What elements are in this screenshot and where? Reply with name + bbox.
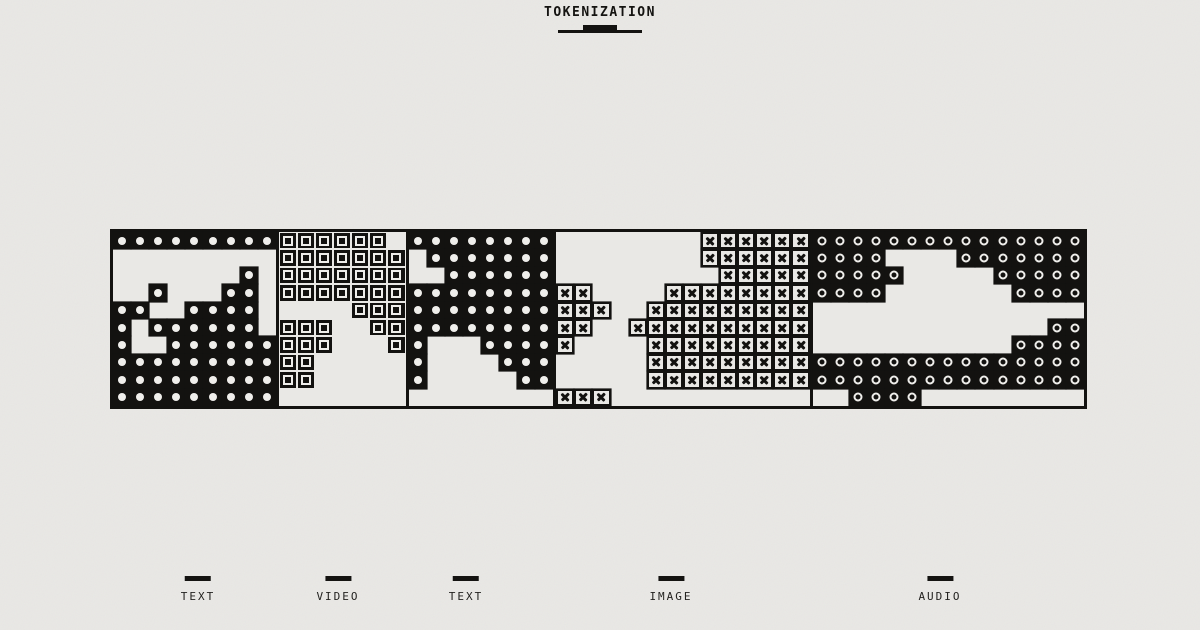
square-cell (297, 336, 315, 353)
dot-cell (167, 354, 185, 371)
xbox-cell (701, 267, 719, 284)
ring-cell (885, 267, 903, 284)
xbox-cell (719, 354, 737, 371)
ring-cell (1030, 336, 1048, 353)
xbox-cell (701, 354, 719, 371)
square-cell (369, 249, 387, 266)
dot-cell (113, 389, 131, 406)
ring-cell (813, 354, 831, 371)
ring-cell (885, 232, 903, 249)
header: TOKENIZATION (0, 0, 1200, 33)
xbox-cell (592, 267, 610, 284)
ring-cell (975, 319, 993, 336)
dot-cell (445, 336, 463, 353)
xbox-cell (683, 284, 701, 301)
tokenization-band (110, 229, 1087, 409)
dot-cell (535, 267, 553, 284)
square-cell (315, 302, 333, 319)
ring-cell (813, 371, 831, 388)
ring-cell (957, 267, 975, 284)
square-cell (333, 249, 351, 266)
legend-dash (453, 576, 479, 581)
dot-cell (240, 284, 258, 301)
square-cell (297, 249, 315, 266)
xbox-cell (791, 284, 809, 301)
dot-cell (409, 302, 427, 319)
dot-cell (535, 249, 553, 266)
dot-cell (409, 371, 427, 388)
xbox-cell (701, 284, 719, 301)
xbox-cell (629, 354, 647, 371)
square-cell (387, 232, 405, 249)
ring-cell (903, 354, 921, 371)
ring-cell (903, 267, 921, 284)
xbox-cell (665, 302, 683, 319)
xbox-cell (629, 249, 647, 266)
dot-cell (409, 249, 427, 266)
xbox-cell (574, 232, 592, 249)
ring-cell (939, 284, 957, 301)
square-cell (333, 336, 351, 353)
square-cell (315, 284, 333, 301)
dot-cell (463, 319, 481, 336)
dot-cell (481, 371, 499, 388)
dot-cell (113, 354, 131, 371)
square-cell (351, 336, 369, 353)
dot-cell (113, 336, 131, 353)
xbox-cell (701, 302, 719, 319)
ring-cell (1066, 267, 1084, 284)
dot-cell (517, 371, 535, 388)
square-cell (297, 319, 315, 336)
dot-cell (203, 319, 221, 336)
xbox-cell (683, 336, 701, 353)
ring-cell (867, 232, 885, 249)
dot-cell (481, 284, 499, 301)
dot-cell (185, 336, 203, 353)
dot-cell (131, 389, 149, 406)
dot-cell (445, 371, 463, 388)
xbox-cell (611, 389, 629, 406)
dot-cell (517, 267, 535, 284)
xbox-cell (556, 232, 574, 249)
ring-cell (813, 389, 831, 406)
square-cell (279, 249, 297, 266)
xbox-cell (592, 284, 610, 301)
xbox-cell (773, 302, 791, 319)
xbox-cell (556, 354, 574, 371)
dot-cell (131, 267, 149, 284)
xbox-cell (665, 319, 683, 336)
dot-cell (409, 319, 427, 336)
dot-cell (258, 302, 276, 319)
dot-cell (463, 249, 481, 266)
dot-cell (113, 302, 131, 319)
legend-label: VIDEO (316, 590, 359, 603)
dot-cell (445, 354, 463, 371)
ring-cell (849, 284, 867, 301)
dot-cell (427, 284, 445, 301)
xbox-cell (755, 319, 773, 336)
dot-cell (149, 302, 167, 319)
xbox-cell (773, 249, 791, 266)
dot-cell (240, 267, 258, 284)
square-cell (279, 302, 297, 319)
ring-cell (849, 354, 867, 371)
dot-cell (203, 302, 221, 319)
square-cell (297, 267, 315, 284)
xbox-cell (629, 319, 647, 336)
square-cell (333, 371, 351, 388)
xbox-cell (719, 302, 737, 319)
square-cell (369, 371, 387, 388)
dot-cell (203, 371, 221, 388)
xbox-cell (556, 302, 574, 319)
ring-cell (1030, 267, 1048, 284)
square-cell (297, 232, 315, 249)
ring-cell (867, 249, 885, 266)
xbox-cell (701, 232, 719, 249)
ring-cell (867, 354, 885, 371)
dot-cell (131, 302, 149, 319)
xbox-cell (611, 232, 629, 249)
xbox-cell (556, 319, 574, 336)
progress-handle (583, 25, 617, 33)
xbox-cell (611, 319, 629, 336)
ring-cell (1048, 319, 1066, 336)
ring-cell (849, 267, 867, 284)
xbox-cell (719, 319, 737, 336)
square-cell (297, 371, 315, 388)
dot-cell (240, 336, 258, 353)
xbox-cell (755, 389, 773, 406)
ring-cell (867, 284, 885, 301)
square-cell (333, 232, 351, 249)
xbox-cell (574, 319, 592, 336)
xbox-cell (719, 267, 737, 284)
dot-cell (427, 249, 445, 266)
ring-cell (1048, 302, 1066, 319)
ring-cell (849, 371, 867, 388)
dot-cell (517, 319, 535, 336)
ring-cell (1048, 371, 1066, 388)
dot-cell (131, 319, 149, 336)
ring-cell (831, 371, 849, 388)
square-cell (333, 267, 351, 284)
square-cell (387, 302, 405, 319)
legend-label: TEXT (449, 590, 484, 603)
xbox-cell (683, 319, 701, 336)
dot-cell (222, 336, 240, 353)
xbox-cell (611, 354, 629, 371)
dot-cell (427, 354, 445, 371)
ring-cell (885, 302, 903, 319)
xbox-cell (574, 284, 592, 301)
ring-cell (975, 389, 993, 406)
dot-cell (463, 371, 481, 388)
dot-cell (131, 371, 149, 388)
xbox-cell (719, 284, 737, 301)
ring-cell (994, 284, 1012, 301)
ring-cell (975, 302, 993, 319)
dot-cell (203, 389, 221, 406)
ring-cell (975, 267, 993, 284)
section-text-1 (113, 232, 276, 406)
dot-cell (499, 354, 517, 371)
dot-cell (409, 232, 427, 249)
square-cell (387, 371, 405, 388)
ring-cell (831, 389, 849, 406)
dot-cell (149, 249, 167, 266)
xbox-cell (647, 267, 665, 284)
dot-cell (131, 249, 149, 266)
xbox-cell (773, 389, 791, 406)
xbox-cell (737, 232, 755, 249)
dot-cell (517, 302, 535, 319)
ring-cell (1066, 354, 1084, 371)
ring-cell (939, 232, 957, 249)
xbox-cell (647, 284, 665, 301)
dot-cell (427, 267, 445, 284)
dot-cell (167, 371, 185, 388)
legend-item-audio-4: AUDIO (918, 576, 961, 603)
ring-cell (939, 319, 957, 336)
xbox-cell (701, 371, 719, 388)
dot-cell (167, 319, 185, 336)
ring-cell (1030, 371, 1048, 388)
xbox-cell (791, 319, 809, 336)
dot-cell (167, 389, 185, 406)
dot-cell (517, 232, 535, 249)
xbox-cell (737, 371, 755, 388)
dot-cell (222, 284, 240, 301)
xbox-cell (773, 336, 791, 353)
ring-cell (903, 336, 921, 353)
xbox-cell (574, 267, 592, 284)
square-cell (387, 354, 405, 371)
ring-cell (831, 336, 849, 353)
ring-cell (939, 302, 957, 319)
xbox-cell (791, 302, 809, 319)
xbox-cell (665, 284, 683, 301)
xbox-cell (629, 284, 647, 301)
xbox-cell (791, 354, 809, 371)
dot-cell (499, 389, 517, 406)
square-cell (387, 389, 405, 406)
dot-cell (203, 267, 221, 284)
xbox-cell (773, 319, 791, 336)
xbox-cell (791, 371, 809, 388)
ring-cell (939, 336, 957, 353)
square-cell (351, 284, 369, 301)
dot-cell (499, 336, 517, 353)
dot-cell (149, 232, 167, 249)
xbox-cell (701, 319, 719, 336)
ring-cell (994, 302, 1012, 319)
dot-cell (240, 232, 258, 249)
dot-cell (445, 319, 463, 336)
ring-cell (994, 336, 1012, 353)
xbox-cell (647, 249, 665, 266)
dot-cell (445, 249, 463, 266)
xbox-cell (755, 371, 773, 388)
xbox-cell (737, 389, 755, 406)
dot-cell (445, 389, 463, 406)
dot-cell (149, 319, 167, 336)
xbox-cell (719, 336, 737, 353)
dot-cell (167, 232, 185, 249)
ring-cell (849, 232, 867, 249)
ring-cell (1012, 267, 1030, 284)
dot-cell (131, 354, 149, 371)
ring-cell (1012, 284, 1030, 301)
dot-cell (445, 302, 463, 319)
ring-cell (994, 389, 1012, 406)
ring-cell (1012, 371, 1030, 388)
ring-cell (994, 232, 1012, 249)
dot-cell (113, 267, 131, 284)
xbox-cell (665, 336, 683, 353)
dot-cell (149, 336, 167, 353)
xbox-cell (755, 284, 773, 301)
dot-cell (463, 354, 481, 371)
dot-cell (222, 354, 240, 371)
ring-cell (1048, 232, 1066, 249)
ring-cell (867, 336, 885, 353)
square-cell (315, 354, 333, 371)
legend-dash (658, 576, 684, 581)
ring-cell (994, 371, 1012, 388)
ring-cell (921, 371, 939, 388)
ring-cell (1066, 284, 1084, 301)
ring-cell (957, 232, 975, 249)
square-cell (369, 354, 387, 371)
ring-cell (903, 232, 921, 249)
dot-cell (445, 284, 463, 301)
ring-cell (1012, 249, 1030, 266)
section-video (279, 232, 406, 406)
dot-cell (499, 267, 517, 284)
dot-cell (185, 267, 203, 284)
xbox-cell (683, 302, 701, 319)
dot-cell (499, 302, 517, 319)
ring-cell (1048, 267, 1066, 284)
ring-cell (1030, 319, 1048, 336)
dot-cell (409, 284, 427, 301)
xbox-cell (737, 249, 755, 266)
dot-cell (240, 249, 258, 266)
xbox-cell (647, 319, 665, 336)
xbox-cell (629, 371, 647, 388)
legend-dash (325, 576, 351, 581)
dot-cell (258, 354, 276, 371)
ring-cell (849, 302, 867, 319)
xbox-cell (611, 284, 629, 301)
dot-cell (222, 319, 240, 336)
xbox-cell (773, 354, 791, 371)
ring-cell (885, 249, 903, 266)
dot-cell (481, 336, 499, 353)
square-cell (315, 389, 333, 406)
square-cell (315, 232, 333, 249)
square-cell (279, 284, 297, 301)
dot-cell (463, 284, 481, 301)
ring-cell (831, 284, 849, 301)
square-cell (387, 336, 405, 353)
legend-item-image-3: IMAGE (649, 576, 692, 603)
dot-cell (240, 354, 258, 371)
dot-cell (222, 371, 240, 388)
dot-cell (535, 389, 553, 406)
square-cell (279, 389, 297, 406)
ring-cell (831, 354, 849, 371)
ring-cell (867, 267, 885, 284)
xbox-cell (773, 284, 791, 301)
square-cell (315, 249, 333, 266)
xbox-cell (611, 336, 629, 353)
dot-cell (535, 371, 553, 388)
square-cell (387, 284, 405, 301)
xbox-cell (791, 336, 809, 353)
dot-cell (113, 284, 131, 301)
ring-cell (1012, 336, 1030, 353)
ring-cell (975, 336, 993, 353)
dot-cell (203, 232, 221, 249)
xbox-cell (574, 354, 592, 371)
xbox-cell (755, 267, 773, 284)
dot-cell (167, 249, 185, 266)
ring-cell (1066, 249, 1084, 266)
dot-cell (113, 371, 131, 388)
square-cell (297, 302, 315, 319)
ring-cell (1030, 389, 1048, 406)
dot-cell (427, 232, 445, 249)
dot-cell (185, 319, 203, 336)
ring-cell (903, 302, 921, 319)
xbox-cell (556, 389, 574, 406)
xbox-cell (556, 336, 574, 353)
xbox-cell (701, 336, 719, 353)
ring-cell (994, 249, 1012, 266)
ring-cell (1048, 249, 1066, 266)
dot-cell (222, 249, 240, 266)
dot-cell (185, 232, 203, 249)
ring-cell (957, 302, 975, 319)
ring-cell (994, 267, 1012, 284)
legend-label: AUDIO (918, 590, 961, 603)
dot-cell (481, 249, 499, 266)
ring-cell (813, 232, 831, 249)
ring-cell (939, 249, 957, 266)
ring-cell (1048, 284, 1066, 301)
ring-cell (1012, 302, 1030, 319)
legend-dash (185, 576, 211, 581)
square-cell (315, 319, 333, 336)
xbox-cell (773, 232, 791, 249)
xbox-cell (665, 371, 683, 388)
dot-cell (185, 249, 203, 266)
xbox-cell (755, 336, 773, 353)
xbox-cell (665, 249, 683, 266)
legend-dash (927, 576, 953, 581)
xbox-cell (719, 389, 737, 406)
square-cell (369, 284, 387, 301)
square-cell (351, 371, 369, 388)
section-audio (813, 232, 1084, 406)
dot-cell (535, 319, 553, 336)
dot-cell (258, 389, 276, 406)
ring-cell (1048, 354, 1066, 371)
